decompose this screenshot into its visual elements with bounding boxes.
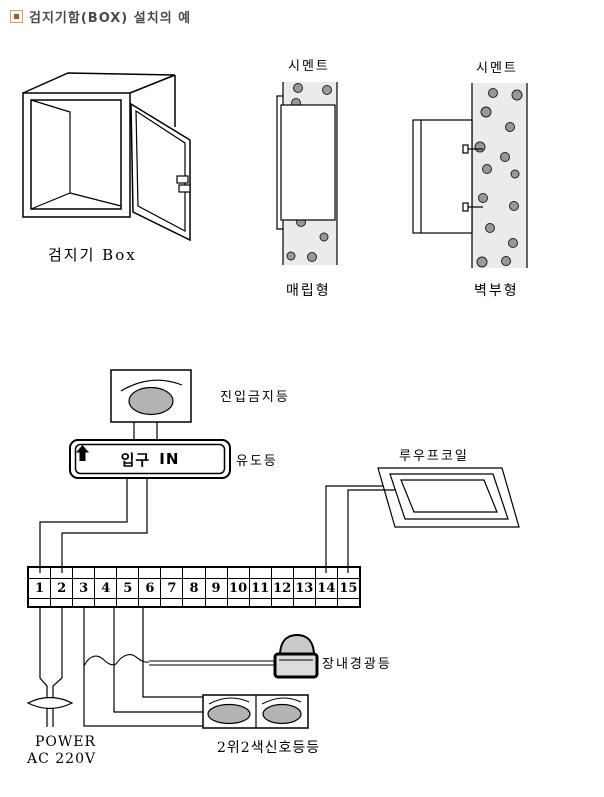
square-bullet-icon [10, 10, 23, 23]
terminal-top-row [183, 568, 204, 579]
terminal-cell: 6 [138, 568, 160, 606]
guide-sign-label: 유도등 [236, 450, 278, 469]
manual-page: 검지기함(BOX) 설치의 예 검지기 Box 시멘트 매립형 시멘트 벽부형 … [0, 0, 604, 797]
diagram-canvas [0, 0, 604, 797]
box-front-opening [31, 100, 121, 209]
guide-sign-text-left: 입구 [121, 449, 151, 470]
terminal-cell: 12 [271, 568, 293, 606]
terminal-bottom-row [29, 599, 50, 606]
terminal-cell: 11 [249, 568, 271, 606]
embedded-type-caption: 매립형 [286, 280, 331, 300]
embedded-box-body [281, 105, 335, 220]
power-label-line1: POWER [35, 734, 96, 750]
loop-coil-label: 루우프코일 [399, 445, 469, 464]
terminal-number: 6 [139, 579, 160, 599]
embedded-type-drawing [277, 82, 337, 265]
wall-mount-type-caption: 벽부형 [474, 280, 519, 300]
power-label-line2: AC 220V [27, 751, 96, 767]
terminal-top-row [29, 568, 50, 579]
terminal-number: 4 [95, 579, 116, 599]
terminal-cell: 7 [160, 568, 182, 606]
entry-light-lamp [129, 388, 173, 415]
terminal-number: 12 [272, 579, 293, 599]
loop-coil-wires [326, 486, 395, 573]
wall-mount-box-body [413, 120, 472, 233]
terminal-top-row [228, 568, 249, 579]
warning-light-label: 장내경광등 [322, 653, 392, 672]
terminal-top-row [117, 568, 138, 579]
terminal-top-row [206, 568, 227, 579]
guide-sign-text: 입구 IN [76, 445, 224, 473]
terminal-cell: 14 [315, 568, 337, 606]
terminal-bottom-row [73, 599, 94, 606]
terminal-number: 5 [117, 579, 138, 599]
terminal-top-row [338, 568, 359, 579]
terminal-cell: 4 [94, 568, 116, 606]
wall-mount-type-drawing [413, 83, 527, 268]
cement-label-embedded: 시멘트 [288, 55, 330, 74]
terminal-bottom-row [316, 599, 337, 606]
terminal-number: 10 [228, 579, 249, 599]
entry-light-wires [134, 422, 157, 440]
terminal-bottom-row [139, 599, 160, 606]
beacon-base [275, 654, 317, 677]
signal-lamp-right [263, 705, 301, 724]
terminal-bottom-row [272, 599, 293, 606]
terminal-cell: 10 [227, 568, 249, 606]
terminal-cell: 15 [337, 568, 359, 606]
entry-light-label: 진입금지등 [220, 386, 290, 405]
detector-box-caption: 검지기 Box [48, 244, 137, 265]
cable-squiggle [84, 655, 149, 666]
page-title: 검지기함(BOX) 설치의 예 [29, 7, 191, 26]
power-cable-grommet [28, 698, 72, 709]
terminal-number: 8 [183, 579, 204, 599]
up-arrow-icon [76, 445, 89, 461]
terminal-number: 14 [316, 579, 337, 599]
terminal-cell: 2 [50, 568, 72, 606]
square-bullet-core [14, 14, 19, 19]
door-latch-top [177, 176, 188, 183]
page-header: 검지기함(BOX) 설치의 예 [10, 7, 191, 26]
terminal-bottom-row [161, 599, 182, 606]
detector-box-drawing [23, 73, 190, 240]
cement-label-wall: 시멘트 [476, 57, 518, 76]
door-latch-bottom [179, 185, 190, 192]
box-top-face [23, 73, 175, 93]
terminal-bottom-row [250, 599, 271, 606]
terminal-cell: 3 [72, 568, 94, 606]
box-front-frame [23, 93, 130, 217]
terminal-number: 1 [29, 579, 50, 599]
terminal-top-row [51, 568, 72, 579]
signal-lights-label: 2위2색신호등등 [217, 737, 320, 757]
terminal-cell: 8 [182, 568, 204, 606]
terminal-number: 11 [250, 579, 271, 599]
box-interior-lines [31, 100, 121, 209]
box-door-inner [136, 111, 185, 231]
terminal-top-row [316, 568, 337, 579]
box-door-outer [131, 104, 190, 240]
terminal-bottom-row [183, 599, 204, 606]
wiring-diagram [28, 370, 519, 728]
loop-coil-turns [378, 468, 519, 527]
guide-sign-text-right: IN [159, 450, 179, 468]
terminal-top-row [73, 568, 94, 579]
terminal-number: 9 [206, 579, 227, 599]
terminal-block: 1 2 3 4 5 6 7 8 9 10 11 12 13 14 15 [27, 566, 361, 608]
terminal-number: 13 [294, 579, 315, 599]
signal-lamp-left [208, 705, 250, 724]
terminal-cell: 5 [116, 568, 138, 606]
power-wires [40, 608, 62, 727]
terminal-bottom-row [206, 599, 227, 606]
guide-sign-wires [40, 478, 147, 573]
terminal-top-row [139, 568, 160, 579]
terminal-bottom-row [95, 599, 116, 606]
terminal-bottom-row [51, 599, 72, 606]
terminal-bottom-row [294, 599, 315, 606]
terminal-number: 7 [161, 579, 182, 599]
terminal-number: 15 [338, 579, 359, 599]
terminal-cell: 9 [205, 568, 227, 606]
terminal-bottom-row [338, 599, 359, 606]
terminal-number: 3 [73, 579, 94, 599]
signal-wire-3 [143, 608, 203, 697]
terminal-number: 2 [51, 579, 72, 599]
terminal-cell: 1 [29, 568, 50, 606]
terminal-top-row [272, 568, 293, 579]
terminal-cell: 13 [293, 568, 315, 606]
warning-light-cable [149, 661, 275, 665]
terminal-bottom-row [228, 599, 249, 606]
terminal-top-row [95, 568, 116, 579]
terminal-top-row [294, 568, 315, 579]
terminal-bottom-row [117, 599, 138, 606]
terminal-top-row [161, 568, 182, 579]
terminal-top-row [250, 568, 271, 579]
